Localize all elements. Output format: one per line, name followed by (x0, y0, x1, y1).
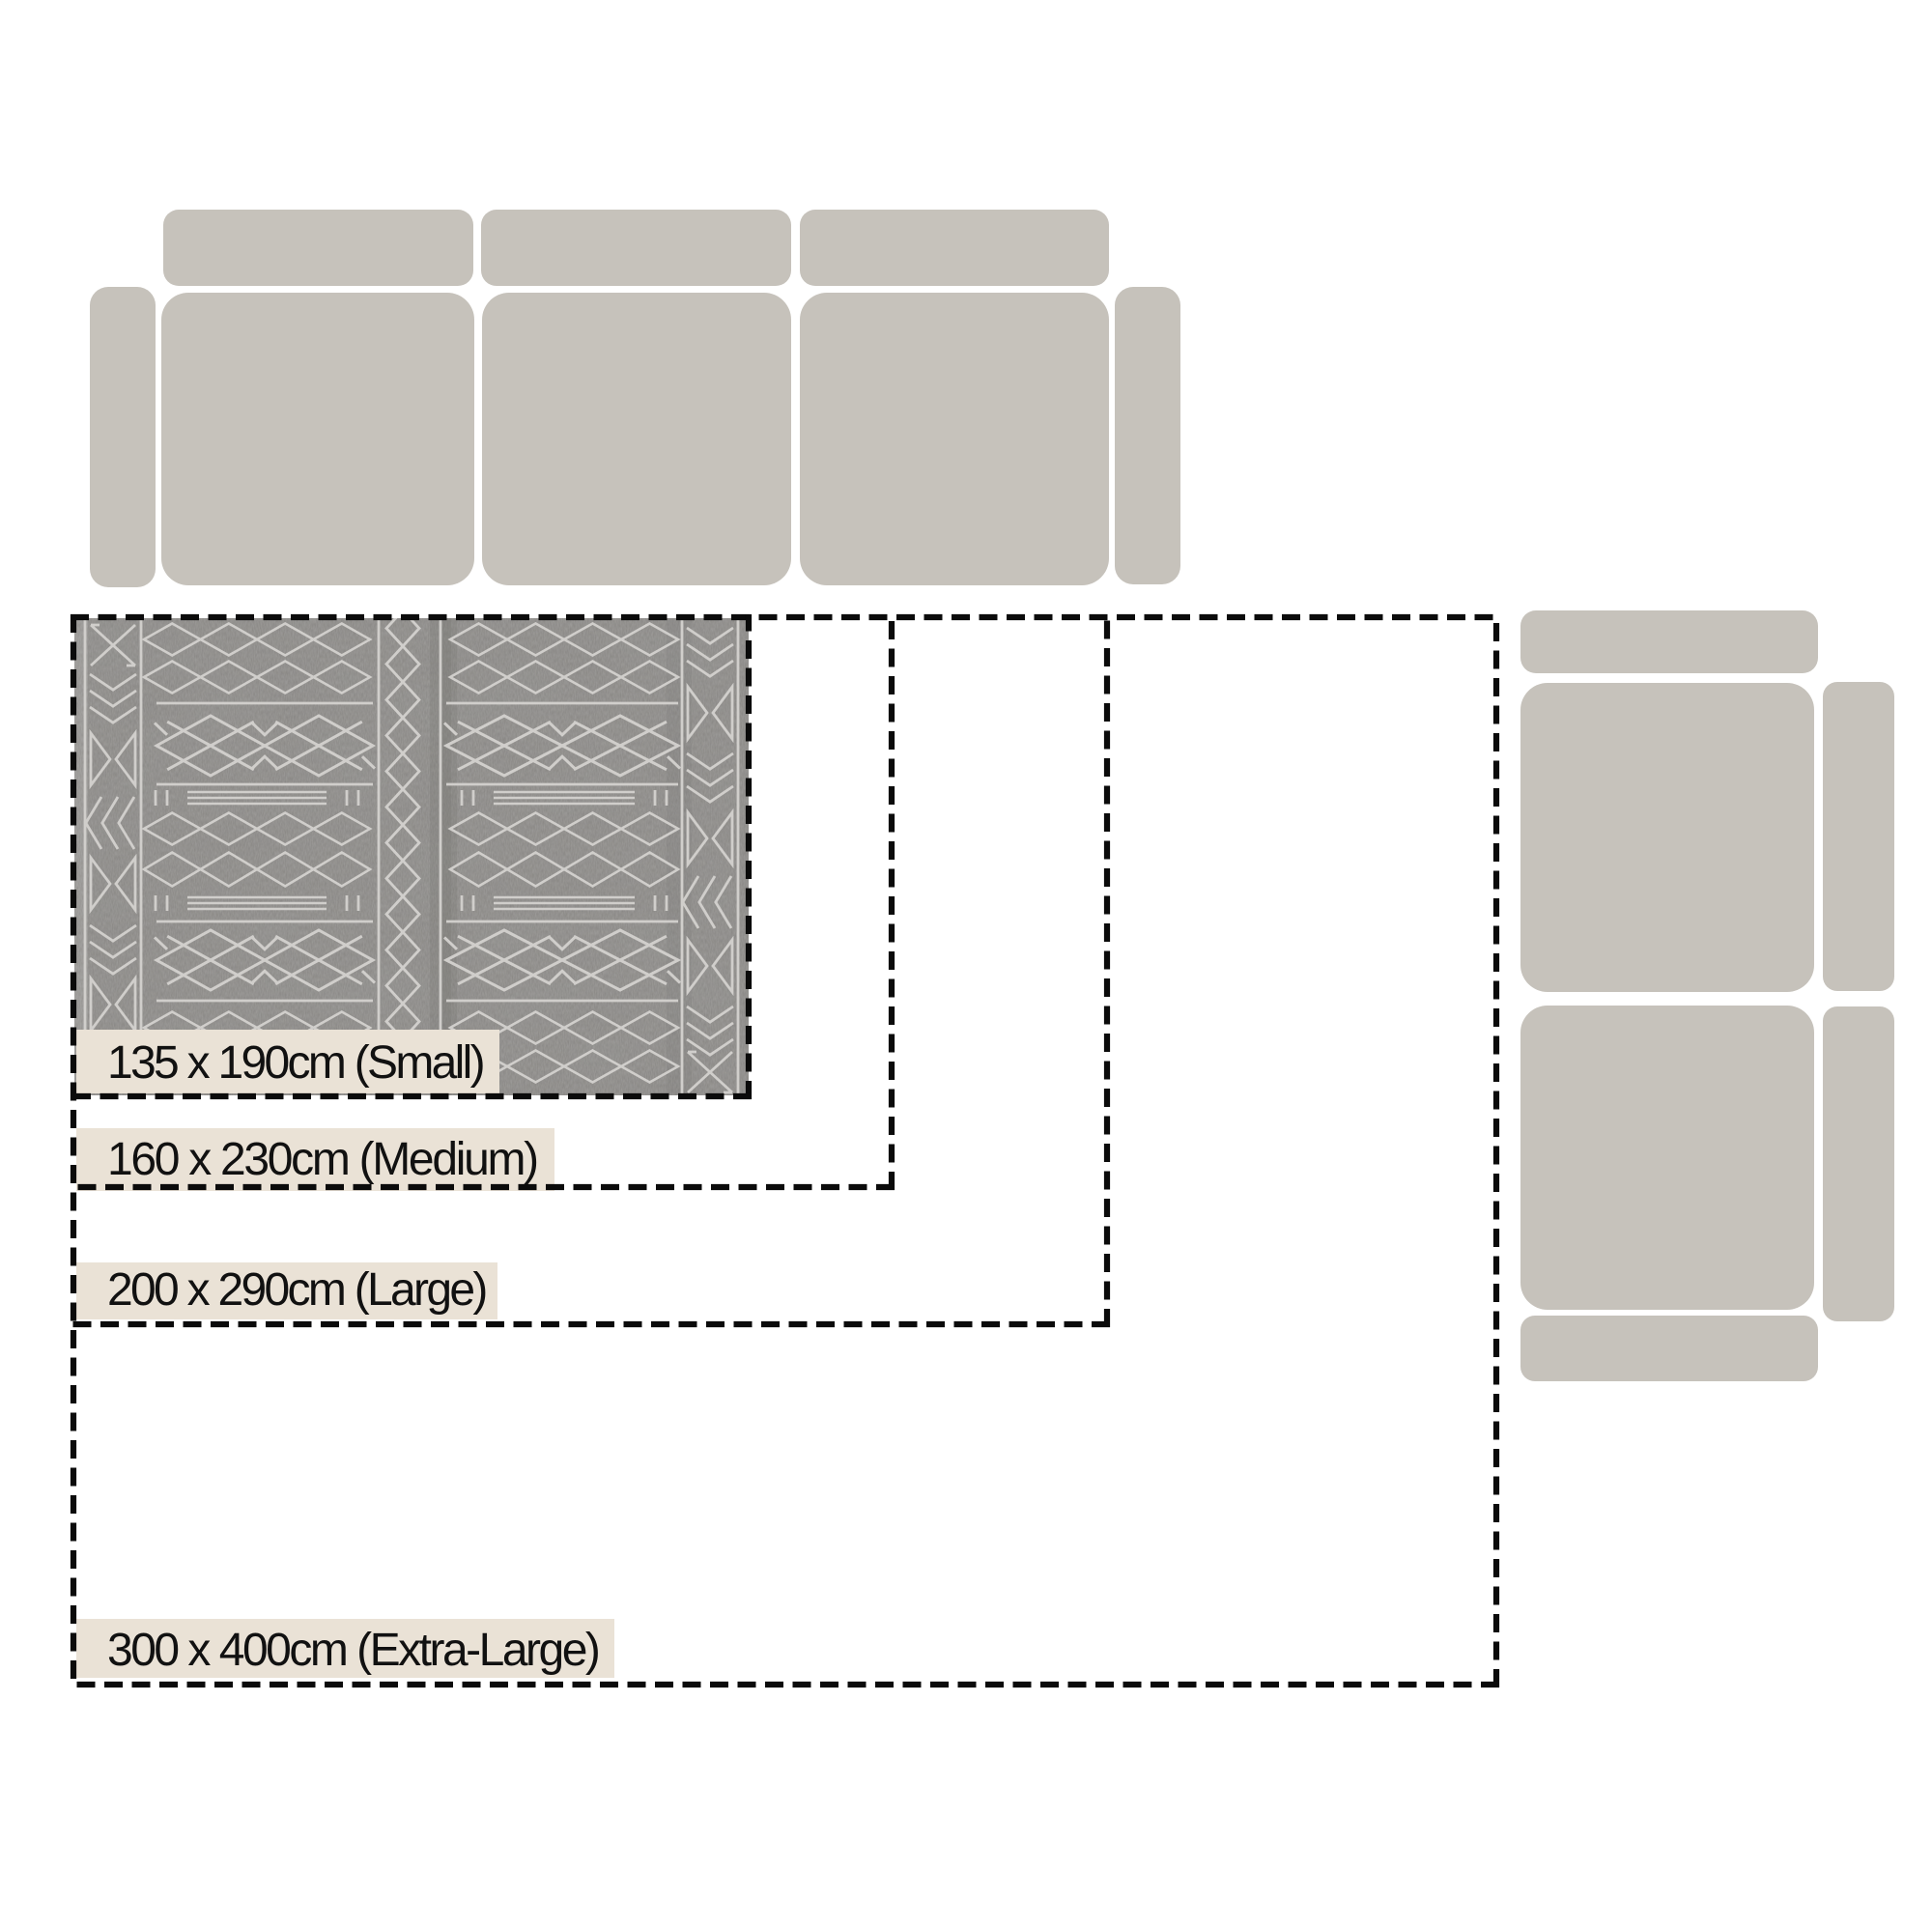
svg-text:200 x 290cm (Large): 200 x 290cm (Large) (107, 1264, 486, 1316)
svg-text:135 x 190cm (Small): 135 x 190cm (Small) (107, 1037, 484, 1089)
svg-text:160 x 230cm (Medium): 160 x 230cm (Medium) (107, 1134, 537, 1185)
svg-text:300 x 400cm (Extra-Large): 300 x 400cm (Extra-Large) (107, 1625, 599, 1676)
